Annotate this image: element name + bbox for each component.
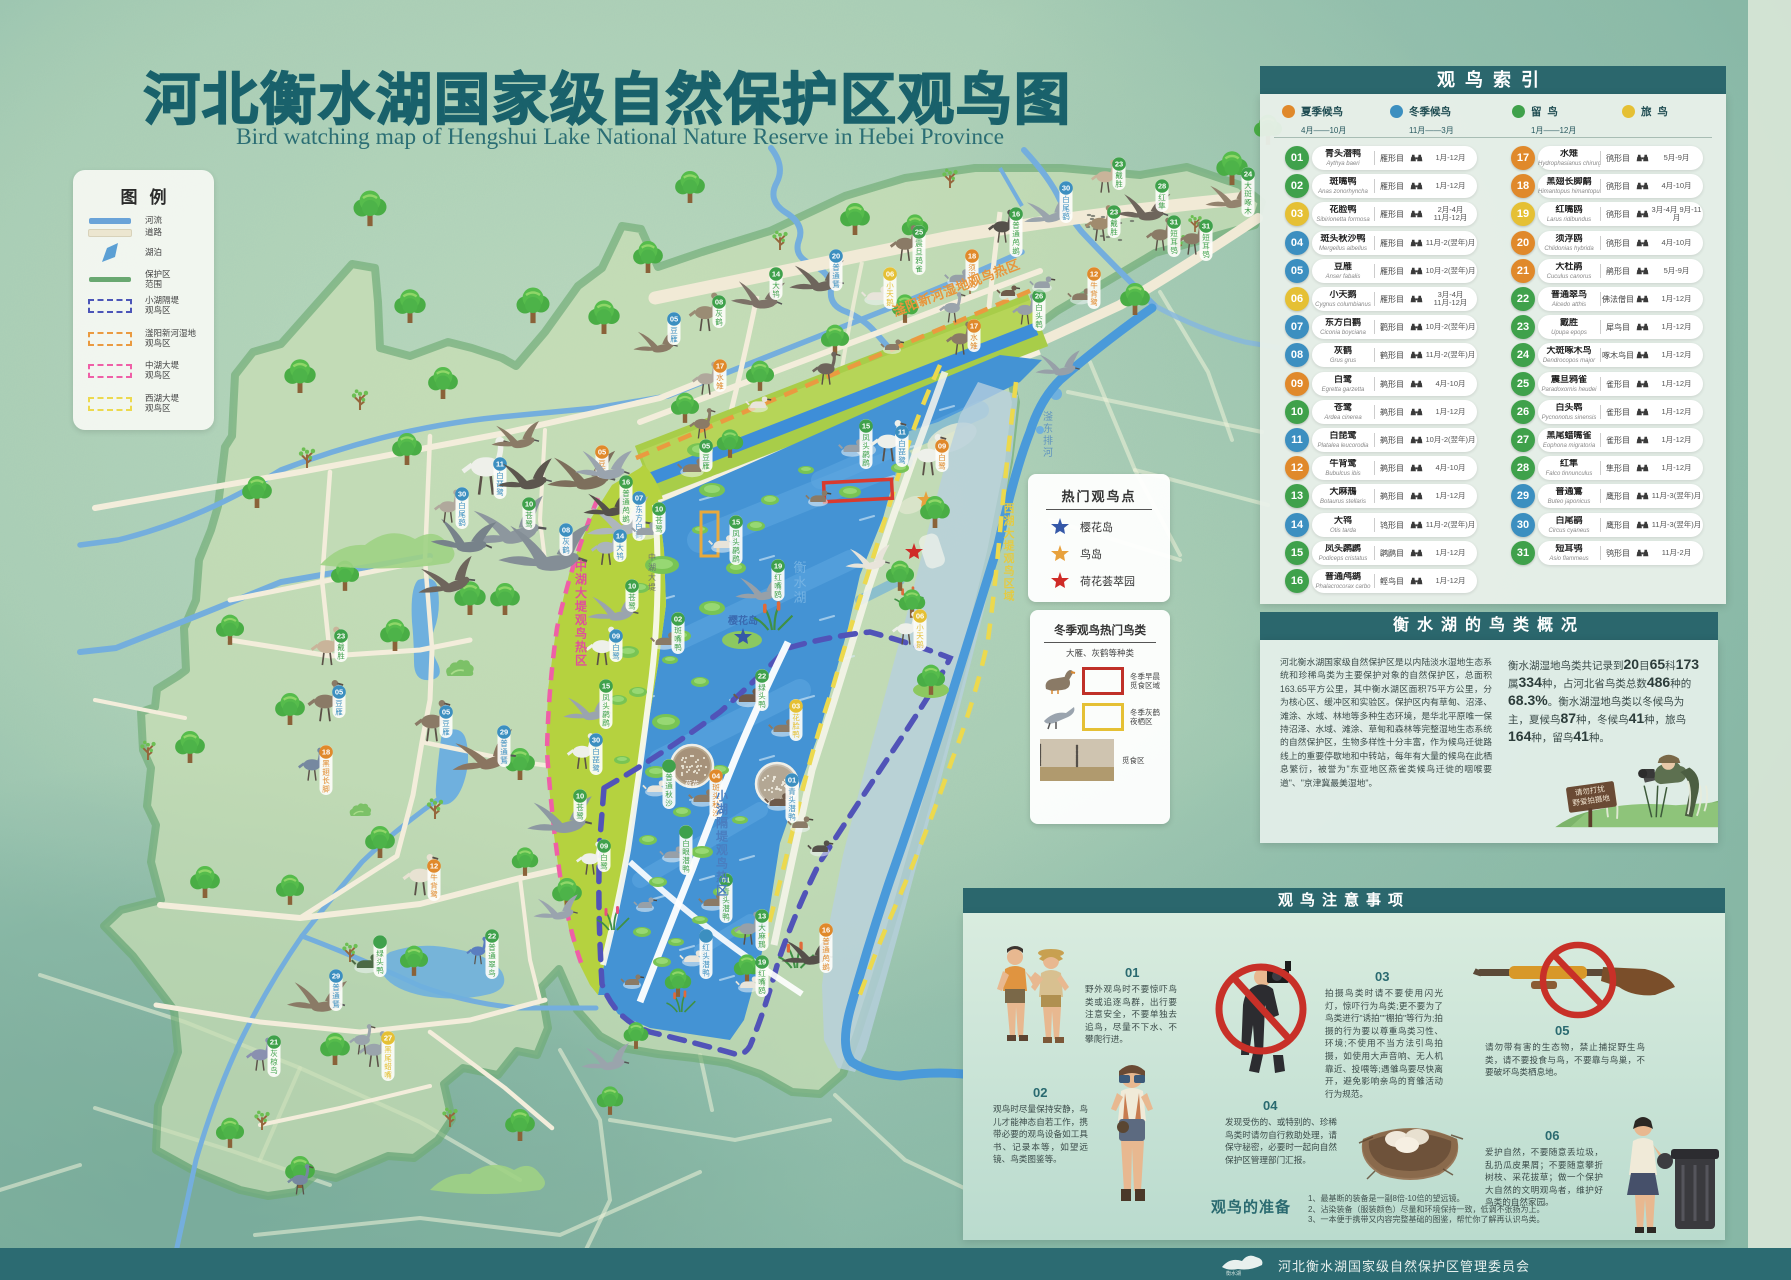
svg-text:16: 16 — [1012, 210, 1020, 219]
svg-text:区: 区 — [1004, 577, 1015, 590]
svg-text:鸦: 鸦 — [915, 255, 923, 265]
svg-text:雀: 雀 — [915, 264, 923, 274]
svg-text:堤: 堤 — [716, 829, 729, 844]
svg-text:通: 通 — [622, 497, 630, 507]
svg-text:23: 23 — [337, 632, 345, 641]
svg-text:白: 白 — [1062, 194, 1070, 204]
svg-text:鸨: 鸨 — [772, 289, 780, 299]
svg-text:白: 白 — [612, 642, 620, 652]
svg-text:牛: 牛 — [1090, 280, 1098, 290]
svg-text:方: 方 — [635, 513, 643, 523]
svg-text:排: 排 — [1043, 434, 1053, 447]
svg-text:08: 08 — [562, 526, 570, 535]
svg-text:普: 普 — [832, 262, 840, 272]
svg-text:30: 30 — [458, 490, 466, 499]
svg-text:雉: 雉 — [970, 341, 978, 351]
svg-text:11: 11 — [898, 428, 906, 437]
svg-text:灰: 灰 — [715, 308, 723, 318]
svg-text:24: 24 — [1244, 170, 1253, 179]
svg-text:04: 04 — [712, 772, 721, 781]
svg-text:鸟: 鸟 — [488, 968, 496, 978]
svg-text:01: 01 — [788, 776, 796, 785]
svg-text:灰: 灰 — [270, 1048, 278, 1058]
svg-text:滏: 滏 — [1043, 411, 1053, 423]
svg-text:雁: 雁 — [702, 462, 710, 471]
svg-text:小: 小 — [716, 788, 728, 803]
svg-text:蜡: 蜡 — [384, 1061, 392, 1071]
svg-text:09: 09 — [600, 842, 608, 851]
svg-text:潜: 潜 — [722, 903, 730, 913]
svg-text:红: 红 — [774, 572, 782, 582]
svg-text:水: 水 — [970, 332, 978, 342]
svg-text:通: 通 — [500, 747, 508, 757]
svg-text:大: 大 — [1244, 180, 1252, 190]
svg-text:鸭: 鸭 — [788, 812, 796, 822]
svg-text:木: 木 — [1244, 206, 1252, 216]
svg-text:15: 15 — [862, 422, 870, 431]
svg-text:鹚: 鹚 — [622, 514, 630, 524]
svg-text:秋: 秋 — [665, 789, 673, 799]
svg-text:鹭: 鹭 — [628, 601, 636, 611]
svg-text:中: 中 — [575, 558, 587, 573]
svg-text:31: 31 — [1170, 218, 1178, 227]
svg-text:05: 05 — [670, 315, 678, 324]
svg-text:普: 普 — [500, 738, 508, 748]
svg-text:30: 30 — [1062, 184, 1070, 193]
svg-text:鹭: 鹭 — [592, 763, 600, 773]
svg-text:长: 长 — [322, 775, 330, 785]
svg-text:鸭: 鸭 — [758, 699, 766, 709]
svg-text:湖: 湖 — [1004, 514, 1015, 528]
svg-text:09: 09 — [612, 632, 620, 641]
svg-text:头: 头 — [788, 795, 796, 805]
svg-text:白: 白 — [496, 470, 504, 480]
svg-text:大: 大 — [1004, 526, 1015, 540]
svg-text:堤: 堤 — [1004, 539, 1016, 553]
svg-text:29: 29 — [500, 728, 508, 737]
svg-text:13: 13 — [758, 912, 766, 921]
svg-text:15: 15 — [602, 682, 610, 691]
svg-text:鹤: 鹤 — [715, 317, 723, 327]
svg-text:头: 头 — [1035, 311, 1043, 321]
svg-text:18: 18 — [968, 252, 976, 261]
svg-text:09: 09 — [938, 442, 946, 451]
svg-text:15: 15 — [732, 518, 740, 527]
svg-text:牛: 牛 — [430, 872, 438, 882]
svg-text:普: 普 — [488, 942, 496, 952]
svg-text:河: 河 — [1043, 447, 1053, 459]
svg-text:鵟: 鵟 — [332, 999, 340, 1009]
svg-text:椋: 椋 — [270, 1057, 278, 1067]
svg-text:鸭: 鸭 — [792, 729, 800, 739]
svg-text:衡水湖: 衡水湖 — [1226, 1270, 1241, 1277]
svg-text:䴙: 䴙 — [732, 545, 740, 555]
svg-text:鸥: 鸥 — [758, 985, 766, 995]
svg-text:鹚: 鹚 — [822, 962, 830, 972]
svg-text:热: 热 — [575, 639, 587, 654]
svg-text:区: 区 — [716, 884, 728, 898]
svg-text:22: 22 — [488, 932, 496, 941]
svg-text:苍: 苍 — [628, 592, 636, 602]
svg-text:头: 头 — [602, 701, 610, 711]
svg-text:头: 头 — [732, 537, 740, 547]
svg-text:堤: 堤 — [648, 582, 656, 592]
svg-text:雁: 雁 — [670, 335, 678, 344]
svg-text:通: 通 — [332, 991, 340, 1001]
svg-text:鸬: 鸬 — [1012, 237, 1020, 247]
svg-text:戴: 戴 — [337, 642, 345, 652]
svg-text:08: 08 — [715, 298, 723, 307]
svg-text:16: 16 — [622, 478, 630, 487]
svg-text:14: 14 — [616, 532, 625, 541]
svg-text:鸭: 鸭 — [702, 968, 710, 978]
svg-text:普: 普 — [1012, 220, 1020, 230]
svg-text:头: 头 — [758, 691, 766, 701]
svg-text:26: 26 — [1035, 292, 1043, 301]
svg-text:戴: 戴 — [1115, 170, 1123, 180]
svg-text:潜: 潜 — [682, 855, 690, 865]
svg-text:鹭: 鹭 — [938, 461, 946, 471]
svg-text:白: 白 — [458, 500, 466, 510]
svg-text:胜: 胜 — [1110, 227, 1118, 237]
svg-text:鸭: 鸭 — [682, 864, 690, 874]
svg-text:衡: 衡 — [793, 560, 806, 575]
svg-text:潜: 潜 — [788, 803, 796, 813]
svg-text:05: 05 — [335, 688, 343, 697]
svg-text:鹭: 鹭 — [430, 889, 438, 899]
svg-text:灰: 灰 — [562, 536, 570, 546]
svg-text:17: 17 — [970, 322, 978, 331]
svg-text:背: 背 — [1090, 289, 1098, 299]
svg-text:通: 通 — [822, 945, 830, 955]
svg-text:10: 10 — [628, 582, 636, 591]
svg-text:20: 20 — [832, 252, 840, 261]
svg-text:03: 03 — [792, 702, 800, 711]
svg-text:水: 水 — [793, 575, 806, 590]
svg-text:头: 头 — [862, 441, 870, 451]
svg-text:10: 10 — [576, 792, 584, 801]
svg-text:普: 普 — [822, 936, 830, 946]
svg-text:斑: 斑 — [674, 625, 682, 635]
svg-text:雁: 雁 — [442, 728, 450, 737]
svg-text:鹭: 鹭 — [600, 861, 608, 871]
svg-text:观: 观 — [716, 843, 728, 857]
svg-text:鸮: 鸮 — [1170, 245, 1178, 255]
svg-text:05: 05 — [598, 448, 606, 457]
svg-text:大: 大 — [616, 542, 624, 552]
svg-text:鹚: 鹚 — [1012, 246, 1020, 256]
svg-text:荷花: 荷花 — [685, 779, 699, 788]
svg-text:嘴: 嘴 — [384, 1070, 392, 1080]
svg-text:05: 05 — [702, 442, 710, 451]
svg-text:头: 头 — [376, 957, 384, 967]
svg-text:嘴: 嘴 — [758, 977, 766, 987]
svg-text:红: 红 — [1158, 192, 1166, 202]
svg-text:鵟: 鵟 — [500, 755, 508, 765]
svg-text:水: 水 — [716, 372, 724, 382]
svg-text:通: 通 — [1012, 229, 1020, 239]
svg-text:鸟: 鸟 — [270, 1065, 278, 1075]
svg-text:䴙: 䴙 — [602, 709, 610, 719]
svg-text:红: 红 — [702, 942, 710, 952]
svg-text:25: 25 — [915, 228, 923, 237]
svg-text:鸥: 鸥 — [774, 589, 782, 599]
svg-text:鹞: 鹞 — [458, 517, 466, 527]
svg-text:斑: 斑 — [1244, 189, 1252, 199]
svg-text:短: 短 — [1202, 232, 1210, 242]
svg-text:嘴: 嘴 — [774, 581, 782, 591]
svg-text:23: 23 — [1110, 208, 1118, 217]
svg-text:29: 29 — [332, 972, 340, 981]
svg-text:普: 普 — [332, 982, 340, 992]
svg-text:28: 28 — [1158, 182, 1166, 191]
svg-text:12: 12 — [1090, 270, 1098, 279]
svg-text:19: 19 — [774, 562, 782, 571]
svg-text:雁: 雁 — [335, 708, 343, 717]
svg-text:麻: 麻 — [758, 931, 766, 941]
svg-text:观: 观 — [575, 613, 587, 627]
svg-text:白: 白 — [682, 838, 690, 848]
svg-text:鹤: 鹤 — [562, 545, 570, 555]
svg-text:潜: 潜 — [702, 959, 710, 969]
svg-text:鵟: 鵟 — [832, 279, 840, 289]
svg-text:16: 16 — [822, 926, 830, 935]
svg-text:22: 22 — [758, 672, 766, 681]
svg-text:鹭: 鹭 — [898, 455, 906, 465]
svg-text:沙: 沙 — [665, 799, 673, 808]
svg-text:21: 21 — [270, 1038, 278, 1047]
svg-text:青: 青 — [788, 786, 796, 796]
svg-text:鹞: 鹞 — [1062, 211, 1070, 221]
svg-text:07: 07 — [635, 494, 643, 503]
svg-text:翅: 翅 — [322, 767, 330, 777]
svg-text:06: 06 — [916, 612, 924, 621]
svg-text:胜: 胜 — [1115, 179, 1123, 189]
svg-text:大: 大 — [648, 572, 656, 582]
svg-text:隔: 隔 — [716, 815, 728, 830]
svg-text:白: 白 — [600, 852, 608, 862]
svg-text:鸨: 鸨 — [616, 551, 624, 561]
svg-text:鸭: 鸭 — [722, 912, 730, 922]
svg-text:湖: 湖 — [793, 590, 806, 605]
svg-text:12: 12 — [430, 862, 438, 871]
svg-text:白: 白 — [592, 746, 600, 756]
svg-text:10: 10 — [655, 505, 663, 514]
svg-text:鹭: 鹭 — [1090, 297, 1098, 307]
svg-text:大: 大 — [772, 280, 780, 290]
svg-text:18: 18 — [322, 748, 330, 757]
svg-text:中: 中 — [648, 552, 656, 562]
svg-text:西: 西 — [1004, 502, 1015, 515]
svg-text:通: 通 — [832, 271, 840, 281]
svg-text:脸: 脸 — [792, 721, 800, 731]
svg-text:鸮: 鸮 — [1202, 249, 1210, 259]
svg-text:白: 白 — [1035, 302, 1043, 312]
svg-text:鹎: 鹎 — [1035, 319, 1043, 329]
svg-text:脚: 脚 — [322, 784, 330, 794]
svg-text:湖: 湖 — [716, 802, 728, 817]
svg-text:鹭: 鹭 — [525, 519, 533, 529]
svg-text:苍: 苍 — [525, 510, 533, 520]
svg-text:鸭: 鸭 — [674, 642, 682, 652]
svg-text:30: 30 — [592, 736, 600, 745]
svg-text:䴙: 䴙 — [862, 449, 870, 459]
svg-text:背: 背 — [430, 881, 438, 891]
svg-text:14: 14 — [772, 270, 781, 279]
svg-text:鹭: 鹭 — [612, 651, 620, 661]
svg-text:花: 花 — [792, 712, 800, 722]
svg-text:白: 白 — [898, 438, 906, 448]
svg-text:樱花岛: 樱花岛 — [728, 614, 758, 627]
svg-text:东: 东 — [635, 504, 643, 514]
svg-text:湖: 湖 — [648, 563, 656, 572]
svg-text:10: 10 — [525, 500, 533, 509]
svg-text:雉: 雉 — [716, 381, 724, 391]
svg-text:胜: 胜 — [337, 651, 345, 661]
svg-text:鸬: 鸬 — [622, 505, 630, 515]
svg-text:鹭: 鹭 — [576, 811, 584, 821]
svg-text:通: 通 — [488, 951, 496, 961]
svg-text:02: 02 — [674, 615, 682, 624]
svg-text:短: 短 — [1170, 228, 1178, 238]
svg-text:鸟: 鸟 — [716, 856, 728, 871]
svg-text:苍: 苍 — [655, 515, 663, 525]
svg-text:白: 白 — [938, 452, 946, 462]
svg-text:湖: 湖 — [575, 572, 587, 587]
svg-text:31: 31 — [1202, 222, 1210, 231]
svg-text:红: 红 — [758, 968, 766, 978]
svg-text:堤: 堤 — [575, 599, 588, 614]
svg-text:䴘: 䴘 — [732, 554, 740, 564]
svg-text:观: 观 — [1004, 552, 1015, 565]
svg-text:鹅: 鹅 — [916, 639, 924, 649]
svg-text:鹭: 鹭 — [655, 524, 663, 534]
svg-text:䴘: 䴘 — [862, 458, 870, 468]
svg-text:鸟: 鸟 — [1004, 564, 1015, 578]
svg-text:鸭: 鸭 — [376, 965, 384, 975]
svg-text:普: 普 — [665, 772, 673, 782]
svg-text:17: 17 — [716, 362, 724, 371]
svg-text:鸟: 鸟 — [575, 626, 587, 641]
svg-text:27: 27 — [384, 1034, 392, 1043]
svg-text:23: 23 — [1115, 160, 1123, 169]
svg-text:普: 普 — [622, 488, 630, 498]
svg-text:头: 头 — [702, 951, 710, 961]
svg-text:19: 19 — [758, 958, 766, 967]
svg-text:热: 热 — [716, 869, 728, 884]
svg-text:戴: 戴 — [1110, 218, 1118, 228]
svg-text:域: 域 — [1004, 589, 1015, 603]
svg-text:11: 11 — [496, 460, 504, 469]
svg-text:05: 05 — [442, 708, 450, 717]
svg-text:鳽: 鳽 — [758, 939, 766, 949]
svg-text:苍: 苍 — [576, 802, 584, 812]
svg-text:大: 大 — [575, 585, 587, 600]
svg-text:鸬: 鸬 — [822, 953, 830, 963]
svg-text:06: 06 — [886, 270, 894, 279]
svg-text:大: 大 — [758, 922, 766, 932]
svg-text:区: 区 — [575, 654, 587, 668]
svg-text:䴘: 䴘 — [602, 718, 610, 728]
svg-text:东: 东 — [1043, 422, 1053, 435]
svg-text:鹭: 鹭 — [496, 487, 504, 497]
svg-text:隼: 隼 — [1158, 201, 1166, 211]
svg-text:嘴: 嘴 — [674, 634, 682, 644]
svg-text:通: 通 — [665, 781, 673, 791]
